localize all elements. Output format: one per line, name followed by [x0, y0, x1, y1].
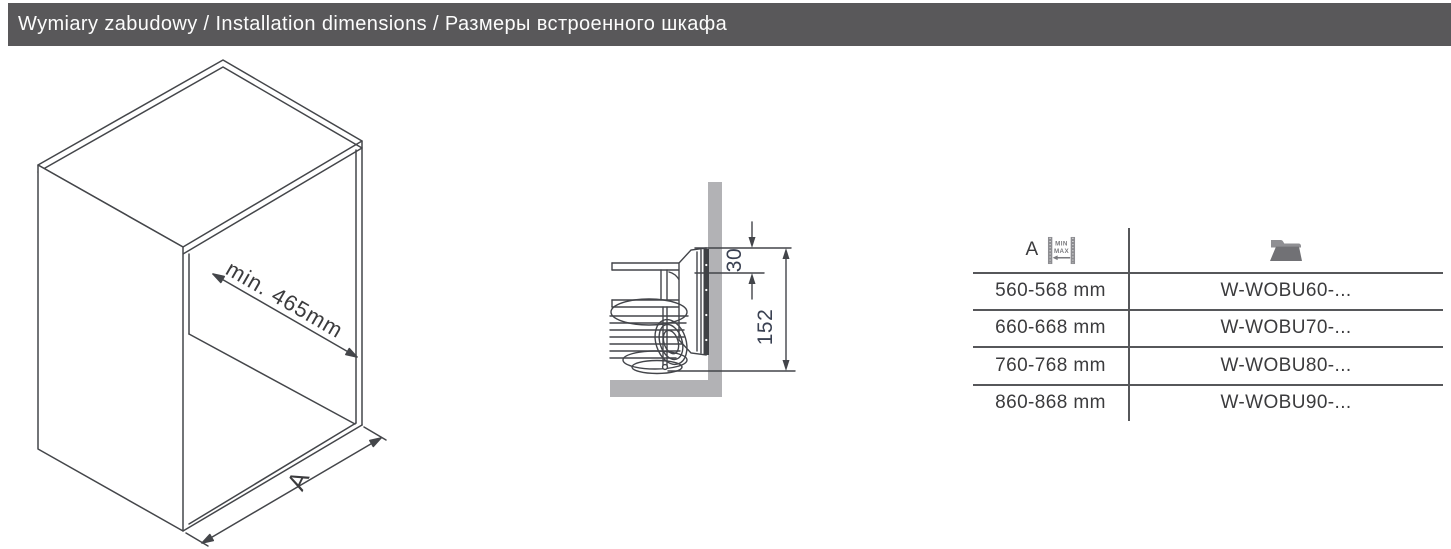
table-row-product: W-WOBU80-...: [1129, 347, 1443, 384]
column-a-label: A: [1025, 239, 1038, 261]
table-header-dimension: A MIN MAX: [973, 228, 1128, 272]
offset-dimension-label: 30: [723, 248, 746, 272]
table-row-product: W-WOBU60-...: [1129, 273, 1443, 310]
table-row-dimension: 860-868 mm: [973, 385, 1128, 422]
height-dimension-label: 152: [754, 309, 777, 346]
table-row-dimension: 560-568 mm: [973, 273, 1128, 310]
depth-dimension-label: min. 465mm: [222, 256, 348, 343]
table-row-product: W-WOBU90-...: [1129, 385, 1443, 422]
bottom-panel: [610, 380, 708, 397]
cabinet-isometric-drawing: min. 465mm A: [20, 55, 415, 549]
table-header-product: [1129, 228, 1443, 272]
svg-text:MIN: MIN: [1055, 240, 1068, 247]
dimension-product-table: A MIN MAX 560-568 mm W-WOBU6: [973, 228, 1443, 422]
table-row-dimension: 660-668 mm: [973, 310, 1128, 347]
table-row-product: W-WOBU70-...: [1129, 310, 1443, 347]
svg-text:MAX: MAX: [1053, 247, 1069, 254]
min-max-width-icon: MIN MAX: [1047, 235, 1076, 266]
catalog-page: Wymiary zabudowy / Installation dimensio…: [0, 0, 1451, 549]
table-row-dimension: 760-768 mm: [973, 347, 1128, 384]
section-title-bar: Wymiary zabudowy / Installation dimensio…: [8, 3, 1451, 46]
side-panel: [708, 182, 722, 397]
width-dimension-label: A: [281, 465, 316, 495]
folder-icon: [1268, 237, 1304, 264]
section-drawing: 30 152: [595, 170, 807, 410]
section-title: Wymiary zabudowy / Installation dimensio…: [8, 13, 727, 36]
